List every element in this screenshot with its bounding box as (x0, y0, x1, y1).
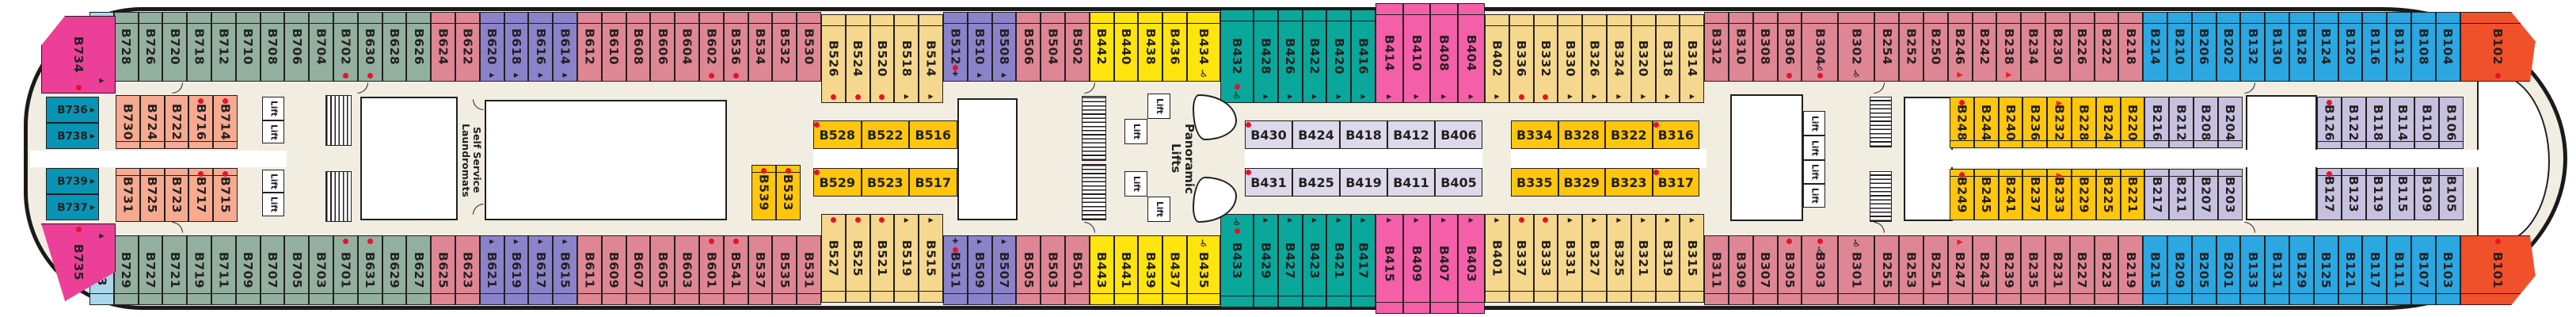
cabin-label: B506 (1022, 29, 1036, 65)
cabin-B215: B215 (2143, 235, 2167, 305)
red-dot-icon (1959, 100, 1965, 105)
cabin-B327: B327▶ (1582, 214, 1607, 303)
cabin-label: B250 (1928, 29, 1942, 65)
cabin-markers (871, 217, 894, 223)
cabin-label: B111 (2392, 252, 2407, 288)
cabin-markers: ▶ (1558, 217, 1581, 223)
cabin-label: B308 (1758, 29, 1772, 65)
cabin-label: B705 (290, 252, 304, 288)
cabin-B624: B624 (431, 12, 455, 82)
cabin-label: B420 (1332, 38, 1346, 74)
cabin-label: B227 (2075, 252, 2089, 288)
cabin-B128: B128 (2289, 12, 2314, 82)
cabin-label: B245 (1979, 176, 1993, 212)
cabin-B117: B117 (2362, 235, 2387, 305)
cabin-label: B302 (1849, 29, 1863, 65)
cabin-label: B411 (1388, 169, 1434, 196)
cabin-label: B630 (363, 29, 377, 65)
panoramic-lifts-label: Panoramic Lifts (1170, 108, 1195, 209)
cabin-B406: B406 (1435, 120, 1482, 149)
cabin-B506: B506 (1016, 12, 1041, 82)
cabin-markers: ▶ (968, 72, 991, 78)
cabin-label: B714 (219, 104, 233, 140)
cabin-B318: B318▶ (1656, 14, 1680, 103)
cabin-label: B224 (2101, 104, 2115, 140)
lift-label: Lift (269, 124, 278, 140)
cabin-label: B106 (2444, 105, 2458, 141)
cabin-B130: B130 (2265, 12, 2289, 82)
cabin-label: B103 (2441, 252, 2455, 288)
cabin-B330: B330▶ (1558, 14, 1582, 103)
cabin-B302: B302♿ (1838, 12, 1874, 82)
lift-label: Lift (1810, 116, 1819, 132)
arrow-icon: ▶ (1414, 94, 1419, 100)
stairs-icon (1082, 96, 1106, 161)
red-dot-icon (1786, 239, 1792, 244)
cabin-label: B629 (387, 252, 401, 288)
cabin-label: B631 (363, 252, 377, 288)
cabin-markers: ▶ (993, 72, 1016, 78)
cabin-B529: B529 (813, 168, 862, 197)
cabin-markers: ▶ (1404, 94, 1430, 100)
cabin-label: B728 (119, 29, 133, 65)
cabin-B234: B234 (2021, 12, 2045, 82)
cabin-label: B201 (2221, 252, 2235, 288)
cabin-markers (1510, 217, 1533, 223)
cabin-label: B723 (169, 177, 184, 213)
cabin-label: B237 (2028, 176, 2042, 212)
lift: Lift (1803, 136, 1825, 160)
cabin-B607: B607 (626, 235, 651, 305)
wheelchair-icon: ♿ (1816, 63, 1825, 72)
cabin-label: B311 (1710, 252, 1724, 288)
cabin-B701: B701 (333, 235, 358, 305)
cabin-B414: B414▶ (1376, 3, 1403, 103)
red-dot-icon (733, 239, 739, 244)
cabin-B511: B511✚ (943, 235, 968, 305)
cabin-label: B307 (1758, 252, 1772, 288)
cabin-label: B520 (875, 40, 889, 77)
cabin-label: B427 (1283, 243, 1297, 279)
cabin-label: B441 (1119, 252, 1133, 288)
arrow-icon: ▶ (929, 94, 934, 100)
cabin-markers: ▶ (481, 239, 504, 245)
cabin-B402: B402▶ (1485, 14, 1509, 103)
cabin-B225: B225 (2096, 169, 2121, 220)
arrow-icon: ▶ (1312, 217, 1317, 223)
cabin-B739: B739▶ (46, 168, 99, 194)
red-dot-icon (1235, 228, 1240, 234)
cabin-B527: B527 (821, 214, 846, 303)
cabin-markers: ▶ (1303, 94, 1326, 100)
cabin-label: B421 (1332, 243, 1346, 279)
arrow-icon: ▶ (1441, 217, 1446, 223)
cabin-B329: B329 (1558, 168, 1606, 197)
cabin-label: B305 (1783, 252, 1797, 288)
cabin-markers: ▶ (895, 94, 918, 100)
arrow-icon: ▶ (1616, 217, 1621, 223)
cabin-B204: B204 (2218, 97, 2243, 148)
cabin-B303: B303♿ (1802, 235, 1838, 305)
cabin-B525: B525 (846, 214, 870, 303)
arrow-icon: ▶ (1568, 217, 1573, 223)
red-dot-icon (855, 217, 861, 223)
arrow-icon: ▶ (1288, 94, 1292, 100)
cabin-B321: B321▶ (1631, 214, 1656, 303)
cabin-B737: B737▶ (46, 194, 99, 220)
cabin-markers: ▶ (529, 239, 552, 245)
arrow-icon: ▶ (514, 239, 519, 245)
cabin-B509: B509▶ (968, 235, 992, 305)
cabin-label: B407 (1436, 246, 1451, 282)
cabin-B736: B736▶ (46, 97, 99, 123)
cabin-markers: ▶ (1431, 217, 1457, 223)
wheelchair-icon: ♿ (1233, 90, 1242, 100)
cabin-B119: B119 (2366, 168, 2391, 220)
cabin-label: B231 (2050, 252, 2064, 288)
cabin-B418: B418 (1340, 120, 1387, 149)
cabin-B236: B236 (2022, 97, 2047, 148)
arrow-icon: ▶ (489, 72, 494, 78)
cabin-markers: ▶ (90, 233, 113, 239)
cabin-markers: ▶ (1632, 94, 1655, 100)
arrow-icon: ▶ (1641, 94, 1646, 100)
cabin-label: B243 (1977, 252, 1992, 288)
cabin-B105: B105 (2439, 168, 2464, 220)
lift-label: Lift (1810, 188, 1819, 204)
cabin-B603: B603 (675, 235, 699, 305)
cabin-label: B720 (168, 29, 182, 65)
cabin-B728: B728 (114, 12, 139, 82)
red-dot-icon (879, 217, 885, 223)
cabin-B409: B409▶ (1403, 214, 1431, 314)
cabin-B104: B104 (2436, 12, 2460, 82)
cabin-B437: B437 (1162, 235, 1187, 305)
cabin-markers: ▶ (993, 239, 1016, 245)
cabin-label: B117 (2368, 252, 2382, 288)
cabin-B508: B508▶ (992, 12, 1017, 82)
cabin-markers: ✚ (944, 65, 967, 79)
cabin-B709: B709 (236, 235, 261, 305)
cabin-B706: B706 (284, 12, 309, 82)
cabin-label: B412 (1388, 121, 1434, 148)
cabin-B316: B316 (1653, 120, 1700, 149)
cabin-label: B710 (241, 29, 255, 65)
cabin-label: B241 (2003, 176, 2018, 212)
cabin-B227: B227 (2070, 235, 2095, 305)
cabin-markers: ▶ (90, 107, 95, 113)
cabin-B232: B232▶ (2047, 97, 2072, 148)
cabin-B203: B203 (2218, 169, 2243, 220)
arrow-icon: ▶ (1361, 217, 1366, 223)
cabin-B424: B424 (1292, 120, 1340, 149)
cabin-label: B320 (1636, 40, 1650, 77)
cabin-label: B704 (314, 29, 329, 65)
cabin-label: B501 (1070, 252, 1084, 288)
stairs-icon (325, 95, 352, 146)
cabin-B336: B336 (1509, 14, 1534, 103)
cabin-label: B206 (2197, 29, 2211, 65)
arrow-icon: ▶ (1002, 239, 1006, 245)
red-dot-icon (198, 171, 204, 177)
arrow-icon: ▶ (1494, 217, 1499, 223)
cabin-label: B110 (2420, 105, 2434, 141)
cabin-B305: B305 (1778, 235, 1802, 305)
cabin-label: B255 (1880, 252, 1894, 288)
cabin-B118: B118 (2366, 97, 2391, 149)
cabin-B231: B231 (2045, 235, 2070, 305)
cabin-B107: B107 (2411, 235, 2436, 305)
cabin-label: B521 (875, 240, 889, 277)
cabin-label: B511 (948, 252, 962, 288)
arrow-icon: ▶ (563, 239, 568, 245)
lift-label: Lift (1810, 164, 1819, 180)
cabin-markers: ▶ (529, 72, 552, 78)
red-dot-icon (855, 94, 861, 100)
cabin-B246: B246▶ (1948, 12, 1973, 82)
cabin-label: B107 (2416, 252, 2430, 288)
cabin-markers: ▶ (90, 204, 95, 211)
cabin-label: B701 (338, 252, 352, 288)
cabin-B626: B626 (406, 12, 431, 82)
cabin-label: B709 (241, 252, 255, 288)
lift: Lift (1803, 160, 1825, 184)
cabin-markers: ▶ (895, 217, 918, 223)
cabin-label: B619 (509, 252, 523, 288)
cabin-B705: B705 (284, 235, 309, 305)
cabin-markers: ▶ (2048, 172, 2071, 179)
cabin-label: B432 (1230, 38, 1244, 74)
cabin-B411: B411 (1387, 168, 1435, 197)
cabin-B407: B407▶ (1430, 214, 1458, 314)
cabin-B124: B124 (2314, 12, 2338, 82)
lift: Lift (262, 97, 284, 120)
cabin-label: B440 (1119, 29, 1133, 65)
cabin-label: B251 (1928, 252, 1942, 288)
cabin-label: B518 (900, 40, 914, 77)
cabin-B521: B521 (870, 214, 895, 303)
red-dot-icon (1235, 84, 1240, 90)
cabin-B120: B120 (2338, 12, 2363, 82)
cabin-B255: B255 (1874, 235, 1899, 305)
cabin-B412: B412 (1387, 120, 1435, 149)
cabin-label: B129 (2294, 252, 2308, 288)
cabin-B523: B523 (862, 168, 910, 197)
cabin-B704: B704 (309, 12, 333, 82)
cabin-label: B607 (631, 252, 645, 288)
cabin-label: B624 (436, 29, 451, 65)
corridor-strip (1948, 150, 2479, 167)
cabin-markers: ▶ (919, 94, 942, 100)
cabin-B425: B425 (1292, 168, 1340, 197)
cabin-B721: B721 (162, 235, 187, 305)
red-dot-icon (831, 94, 836, 100)
cross-icon: ✚ (953, 239, 959, 246)
cabin-markers: ▶ (505, 239, 528, 245)
cabin-label: B332 (1539, 40, 1553, 77)
cabin-B507: B507▶ (992, 235, 1017, 305)
cabin-label: B234 (2026, 29, 2041, 65)
cabin-B604: B604 (675, 12, 699, 82)
cabin-label: B205 (2197, 252, 2211, 288)
cabin-B605: B605 (650, 235, 675, 305)
cabin-label: B202 (2221, 29, 2235, 65)
red-dot-icon (761, 168, 767, 174)
red-dot-icon (786, 168, 791, 174)
cabin-label: B240 (2003, 104, 2018, 140)
stairs-icon (325, 171, 352, 222)
cabin-label: B617 (534, 252, 548, 288)
cabin-B326: B326▶ (1582, 14, 1607, 103)
arrow-icon: ▶ (1414, 217, 1419, 223)
cabin-markers (1535, 217, 1558, 223)
arrow-icon: ▶ (99, 78, 104, 84)
cabin-B254: B254 (1874, 12, 1899, 82)
cabin-B109: B109 (2414, 168, 2439, 220)
cabin-B315: B315▶ (1680, 214, 1704, 303)
cabin-B223: B223 (2095, 235, 2119, 305)
red-dot-icon (1786, 73, 1792, 78)
cross-icon: ✚ (953, 71, 959, 78)
cabin-B522: B522 (862, 120, 910, 149)
cabin-label: B508 (997, 29, 1011, 65)
cabin-label: B731 (120, 177, 135, 213)
cabin-B615: B615▶ (553, 235, 577, 305)
cabin-markers: ▶ (1376, 217, 1402, 223)
cabin-label: B531 (802, 252, 816, 288)
lift-label: Lift (1810, 140, 1819, 156)
cabin-markers: ♿ (1802, 239, 1837, 255)
cabin-label: B327 (1588, 240, 1602, 277)
arrow-icon: ▶ (489, 239, 494, 245)
cabin-label: B239 (2002, 252, 2016, 288)
cabin-markers: ▶ (1583, 217, 1606, 223)
cabin-B306: B306 (1778, 12, 1802, 82)
red-dot-icon (1817, 239, 1823, 244)
cabin-label: B303 (1813, 252, 1827, 288)
cabin-label: B225 (2101, 176, 2115, 212)
cabin-markers (42, 227, 115, 232)
cabin-B228: B228 (2072, 97, 2096, 148)
cabin-label: B253 (1904, 252, 1919, 288)
cabin-B337: B337 (1509, 214, 1534, 303)
cabin-B417: B417▶ (1351, 214, 1376, 307)
cabin-markers (1950, 172, 1973, 178)
stairs-icon (1870, 97, 1892, 147)
cabin-markers (334, 239, 357, 244)
cabin-label: B707 (265, 252, 280, 288)
cabin-B429: B429▶ (1254, 214, 1278, 307)
cabin-B403: B403▶ (1458, 214, 1486, 314)
cabin-B106: B106 (2439, 97, 2464, 149)
cabin-label: B331 (1563, 240, 1577, 277)
cabin-B715: B715 (213, 168, 238, 222)
cabin-label: B519 (900, 240, 914, 277)
cabin-label: B229 (2076, 176, 2091, 212)
cabin-label: B503 (1046, 252, 1060, 288)
cabin-label: B510 (972, 29, 987, 65)
red-arrow-icon: ▶ (1958, 239, 1963, 246)
cabin-label: B217 (2150, 176, 2164, 212)
cabin-label: B402 (1490, 40, 1504, 77)
cabin-markers: ▶ (1254, 94, 1277, 100)
cabin-B622: B622 (455, 12, 480, 82)
cabin-B703: B703 (309, 235, 333, 305)
cabin-markers: ▶ (1404, 217, 1430, 223)
cabin-label: B242 (1977, 29, 1992, 65)
cabin-label: B727 (143, 252, 158, 288)
cabin-markers (2318, 100, 2341, 105)
red-dot-icon (1543, 217, 1548, 223)
cabin-label: B406 (1436, 121, 1482, 148)
cabin-B531: B531 (797, 235, 821, 305)
cabin-label: B101 (2490, 252, 2505, 288)
cabin-label: B725 (145, 177, 159, 213)
stairs-icon (1870, 171, 1892, 222)
cabin-B426: B426▶ (1278, 10, 1303, 103)
cabin-B532: B532 (772, 12, 797, 82)
room (485, 100, 727, 220)
cabin-B625: B625 (431, 235, 455, 305)
wheelchair-icon: ♿ (1852, 69, 1861, 78)
cabin-B322: B322 (1605, 120, 1653, 149)
deck-plan: B732▶B728B726B720B718B712B710B708B706B70… (0, 0, 2576, 317)
cabin-label: B534 (753, 29, 767, 65)
cabin-label: B108 (2416, 29, 2430, 65)
cabin-B628: B628 (382, 12, 407, 82)
cabin-label: B235 (2026, 252, 2041, 288)
cabin-markers (777, 168, 800, 174)
cabin-label: B118 (2371, 105, 2385, 141)
cabin-B707: B707 (261, 235, 285, 305)
cabin-label: B721 (168, 252, 182, 288)
cabin-label: B438 (1143, 29, 1158, 65)
cabin-label: B319 (1661, 240, 1675, 277)
cabin-B610: B610 (602, 12, 626, 82)
cabin-markers: ▶ (1583, 94, 1606, 100)
cabin-markers: ▶ (1632, 217, 1655, 223)
cabin-B131: B131 (2265, 235, 2289, 305)
cabin-label: B609 (607, 252, 621, 288)
corridor-strip (1511, 149, 1707, 168)
cabin-B608: B608 (626, 12, 651, 82)
cabin-label: B322 (1606, 121, 1652, 148)
cabin-label: B616 (534, 29, 548, 65)
cabin-label: B233 (2053, 176, 2067, 212)
cabin-B435: B435♿ (1187, 235, 1220, 305)
cabin-B408: B408▶ (1430, 3, 1458, 103)
red-dot-icon (831, 217, 836, 223)
cabin-markers: ▶ (2048, 100, 2071, 107)
lift-label: Lift (1132, 176, 1140, 192)
cabin-label: B222 (2099, 29, 2114, 65)
cabin-B415: B415▶ (1376, 214, 1403, 314)
arrow-icon: ▶ (1312, 94, 1317, 100)
cabin-B726: B726 (139, 12, 163, 82)
cabin-B714: B714 (213, 95, 238, 149)
cabin-B209: B209 (2167, 235, 2192, 305)
cabin-markers: ▶ (1997, 71, 2020, 78)
cabin-label: B436 (1168, 29, 1182, 65)
cabin-B122: B122 (2342, 97, 2366, 149)
red-dot-icon (1653, 122, 1659, 128)
cabin-label: B722 (169, 104, 184, 140)
cabin-label: B623 (460, 252, 474, 288)
cabin-label: B324 (1611, 40, 1626, 77)
cabin-B129: B129 (2289, 235, 2314, 305)
lift: Lift (262, 120, 284, 143)
lift-label: Lift (269, 174, 278, 189)
